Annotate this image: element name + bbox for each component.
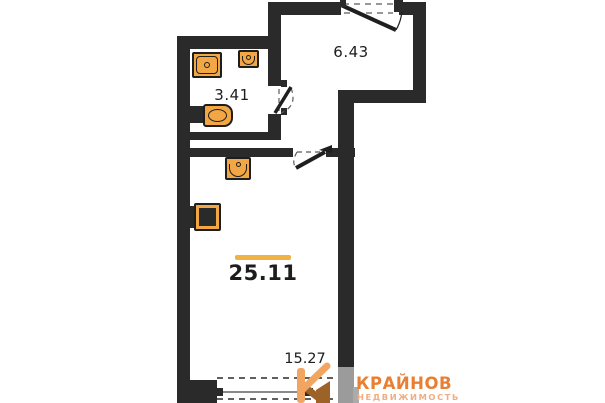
living-area-label: 15.27 (284, 351, 326, 367)
floor-plan: 3.41 6.43 15.27 25.11 КРАЙНОВ НЕДВИЖИМОС… (0, 0, 605, 403)
total-area-label: 25.11 (229, 261, 298, 285)
house-k-icon (297, 366, 330, 403)
entrance-door (340, 0, 403, 30)
bathroom-area-label: 3.41 (214, 86, 249, 104)
plan-linework (0, 0, 605, 403)
total-area-marker (235, 255, 291, 260)
logo-brand-text: КРАЙНОВ (356, 376, 452, 393)
bathroom-door (275, 80, 293, 115)
hallway-area-label: 6.43 (333, 43, 368, 61)
room-door (294, 145, 332, 168)
logo-tagline-text: НЕДВИЖИМОСТЬ (357, 393, 460, 401)
